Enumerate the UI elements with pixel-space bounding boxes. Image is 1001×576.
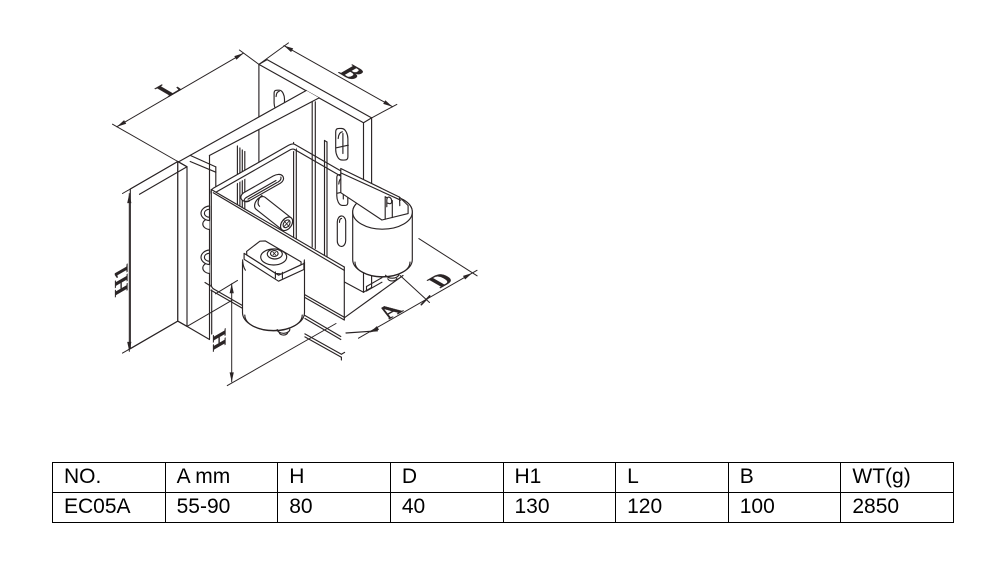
svg-text:A: A	[372, 300, 410, 322]
svg-text:L: L	[150, 78, 188, 100]
svg-text:D: D	[423, 270, 461, 292]
svg-text:B: B	[333, 62, 371, 84]
svg-text:H1: H1	[110, 260, 132, 301]
